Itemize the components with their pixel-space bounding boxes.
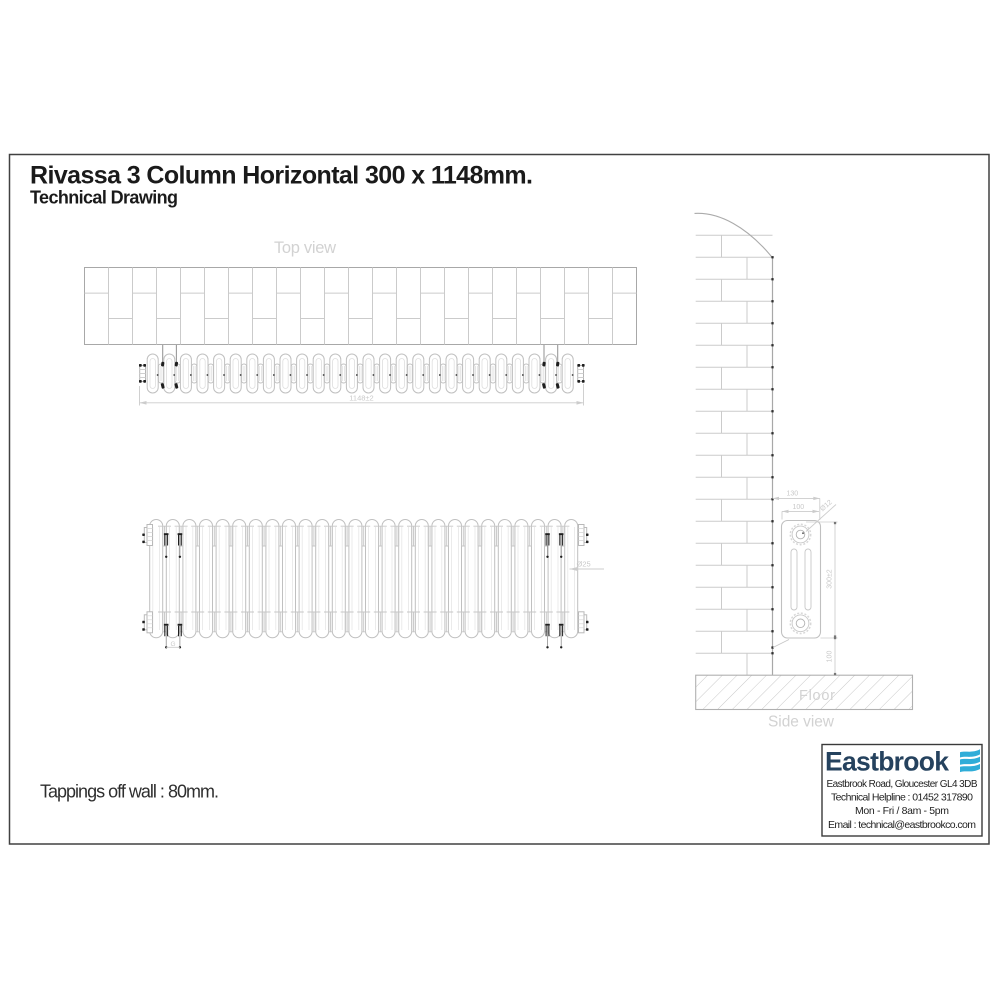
svg-text:Ø25: Ø25 bbox=[577, 560, 591, 569]
svg-text:Side view: Side view bbox=[768, 714, 835, 731]
svg-text:100: 100 bbox=[827, 651, 834, 663]
svg-text:Eastbrook Road, Gloucester GL4: Eastbrook Road, Gloucester GL4 3DB bbox=[827, 779, 978, 790]
svg-text:Mon - Fri / 8am - 5pm: Mon - Fri / 8am - 5pm bbox=[855, 805, 949, 817]
svg-text:Floor: Floor bbox=[799, 688, 835, 704]
svg-text:Email : technical@eastbrookco.: Email : technical@eastbrookco.com bbox=[828, 819, 976, 831]
svg-text:Top view: Top view bbox=[274, 239, 336, 257]
svg-text:130: 130 bbox=[787, 491, 799, 498]
svg-text:Eastbrook: Eastbrook bbox=[825, 747, 949, 777]
svg-text:Technical Helpline : 01452 317: Technical Helpline : 01452 317890 bbox=[831, 791, 973, 803]
svg-text:100: 100 bbox=[793, 504, 805, 511]
svg-text:Rivassa 3 Column Horizontal 30: Rivassa 3 Column Horizontal 300 x 1148mm… bbox=[30, 162, 533, 190]
svg-text:Technical Drawing: Technical Drawing bbox=[30, 188, 178, 208]
svg-text:G: G bbox=[171, 641, 176, 648]
svg-text:Tappings off wall : 80mm.: Tappings off wall : 80mm. bbox=[40, 782, 219, 802]
svg-text:1148±2: 1148±2 bbox=[349, 393, 373, 402]
svg-text:300±2: 300±2 bbox=[827, 569, 834, 589]
